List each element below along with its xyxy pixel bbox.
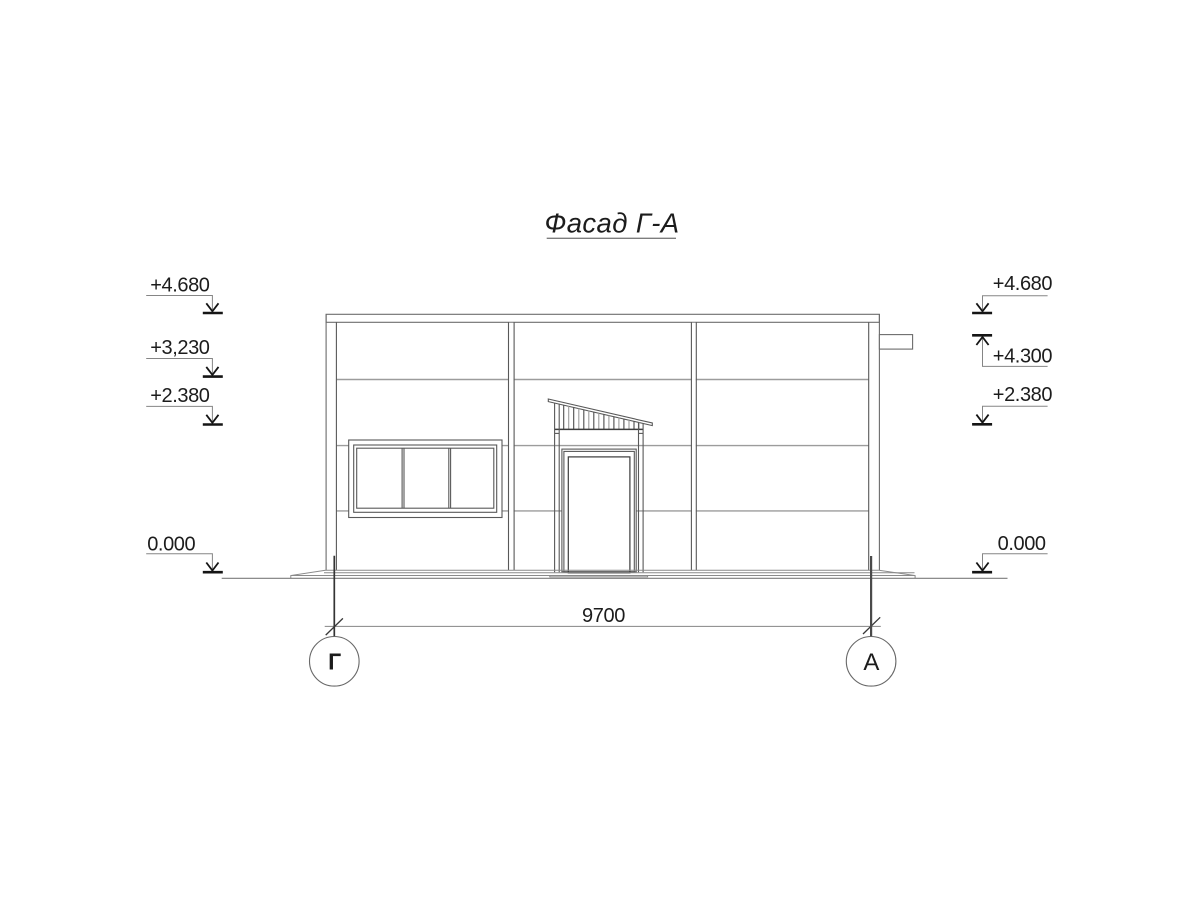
- svg-text:9700: 9700: [582, 605, 625, 627]
- svg-text:Фасад Г-А: Фасад Г-А: [544, 208, 679, 239]
- svg-text:+3,230: +3,230: [150, 337, 210, 359]
- svg-text:0.000: 0.000: [147, 534, 195, 556]
- svg-text:+2.380: +2.380: [150, 385, 210, 407]
- svg-text:А: А: [863, 649, 879, 676]
- svg-text:+4.680: +4.680: [993, 273, 1053, 295]
- svg-text:Г: Г: [328, 649, 341, 675]
- svg-text:0.000: 0.000: [998, 533, 1046, 555]
- svg-text:+4.300: +4.300: [993, 345, 1053, 367]
- svg-text:+4.680: +4.680: [150, 274, 210, 296]
- svg-text:+2.380: +2.380: [993, 384, 1053, 406]
